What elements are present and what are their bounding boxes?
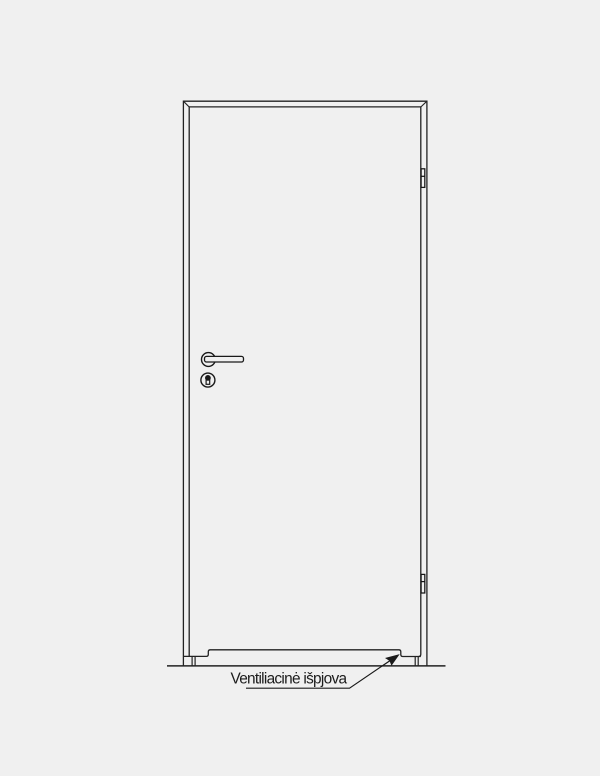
svg-text:Ventiliacinė išpjova: Ventiliacinė išpjova xyxy=(231,670,348,687)
